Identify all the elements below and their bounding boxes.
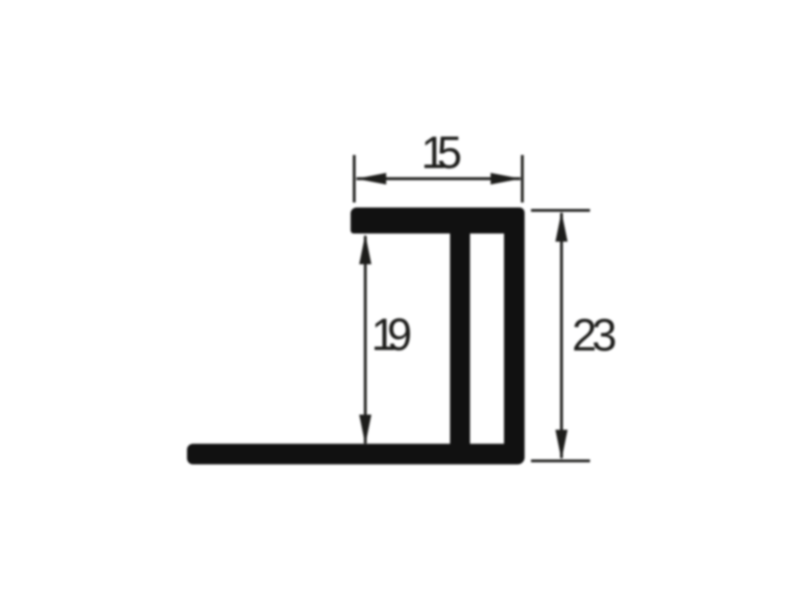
- svg-text:15: 15: [421, 127, 461, 178]
- svg-text:19: 19: [371, 309, 410, 360]
- svg-text:23: 23: [572, 310, 616, 361]
